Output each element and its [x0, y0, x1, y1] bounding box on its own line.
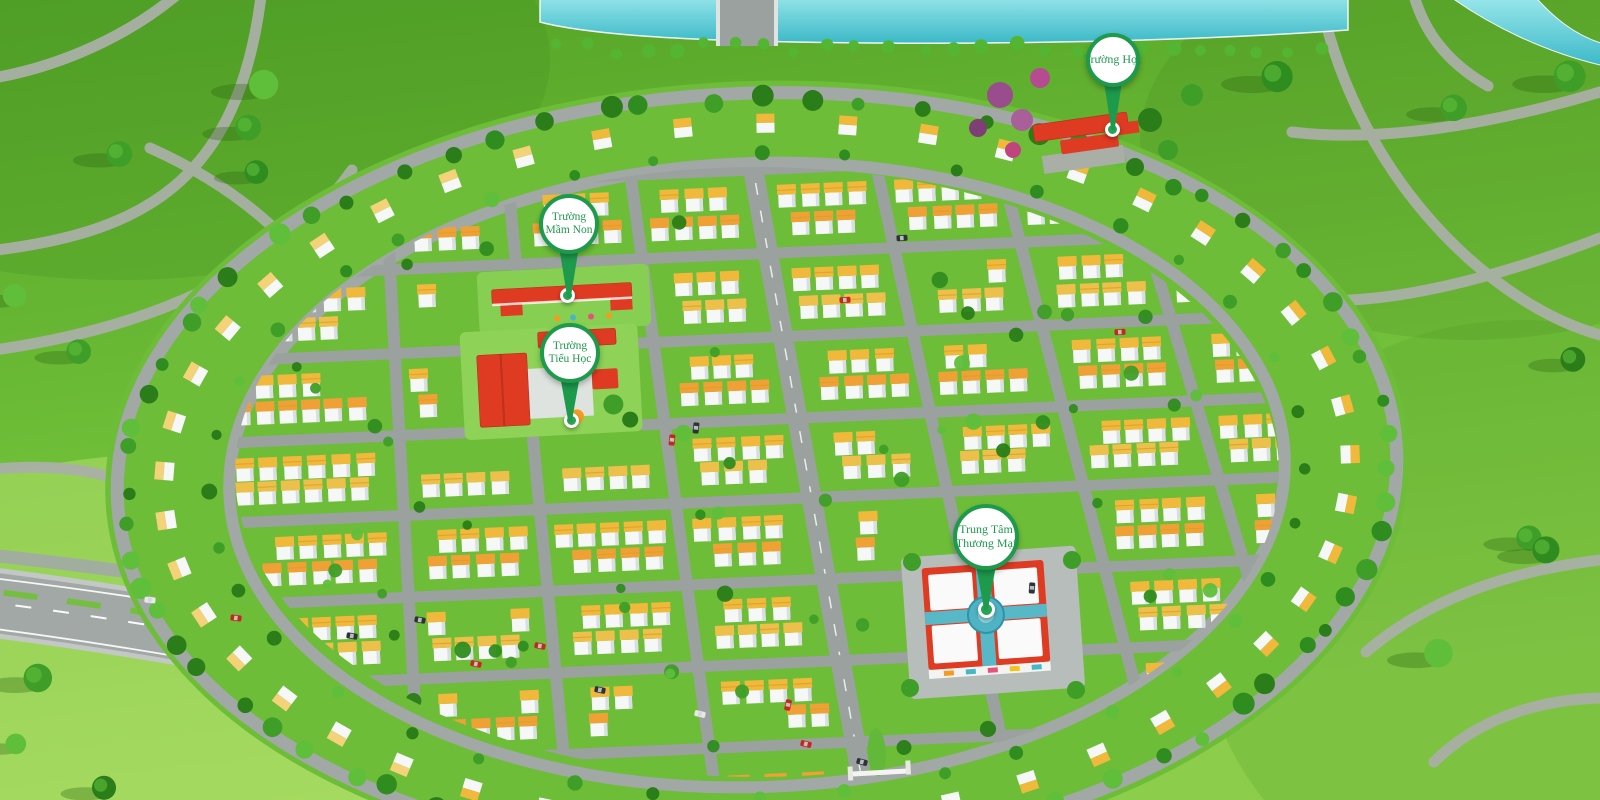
pin-label-text: Trường Học: [1084, 53, 1143, 67]
pin-label-bubble: Trung Tâm Thương Mại: [953, 504, 1019, 570]
pin-label-text: Trường: [552, 211, 586, 224]
pin-label-bubble: Trường Mầm Non: [539, 194, 599, 254]
pin-label-bubble: Trường Tiểu Học: [540, 323, 600, 383]
pin-label-bubble: Trường Học: [1086, 33, 1140, 87]
pin-label-text: Tiểu Học: [549, 353, 592, 366]
master-plan-canvas: Trường Học Trường Mầm Non Trường Tiểu Họ…: [0, 0, 1600, 800]
pin-label-text: Trường: [553, 340, 587, 353]
aerial-render: [0, 0, 1600, 800]
pin-label-text: Mầm Non: [546, 224, 593, 237]
pin-label-text: Thương Mại: [956, 537, 1017, 551]
pin-label-text: Trung Tâm: [959, 523, 1013, 537]
